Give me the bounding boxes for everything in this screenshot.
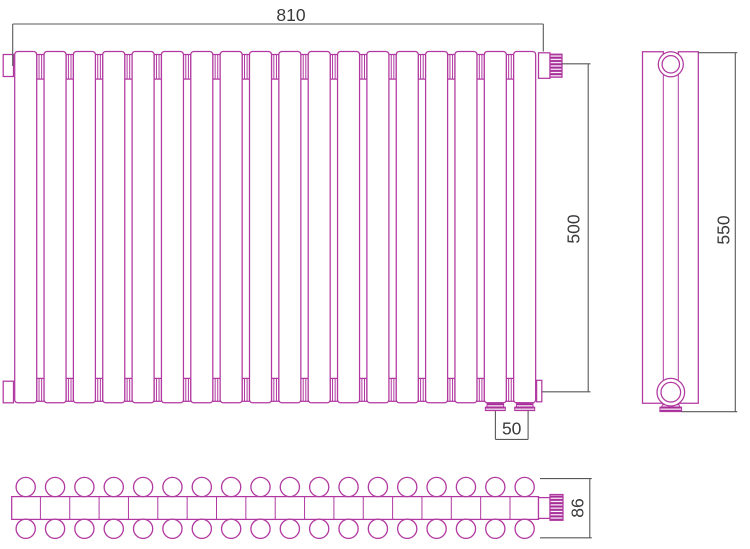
tube-cross-section-back-row [45,519,64,538]
bottom-collector-joint [213,378,220,401]
radiator-tube [250,52,272,403]
tube-cross-section-back-row [368,519,387,538]
tube-cross-section-front-row [45,477,64,496]
bottom-collector-joint [418,378,425,401]
bottom-collector-joint [389,378,396,401]
bottom-collector-joint [183,378,190,401]
tube-cross-section-back-row [104,519,123,538]
air-valve-body [539,53,551,79]
top-valve-body [539,498,551,519]
bottom-collector-joint [301,378,308,401]
tube-cross-section-front-row [486,477,505,496]
bottom-connection-nut [516,403,533,407]
radiator-tube [103,52,125,403]
dim-label-overall-height: 550 [714,215,734,244]
radiator-tube [396,52,418,403]
bottom-collector-joint [448,378,455,401]
tube-cross-section-back-row [427,519,446,538]
top-collector-joint [418,55,425,80]
tube-cross-section-back-row [75,519,94,538]
radiator-tube [161,52,183,403]
radiator-tube [308,52,330,403]
top-valve-knob [550,495,563,521]
radiator-tube [15,52,37,403]
radiator-tube [484,52,506,403]
tube-cross-section-front-row [134,477,153,496]
radiator-tube [279,52,301,403]
radiator-technical-drawing: 8105005505086 [0,0,750,549]
bottom-collector-joint [242,378,249,401]
tube-cross-section-back-row [163,519,182,538]
top-collector-joint [154,55,161,80]
top-collector-joint [213,55,220,80]
tube-cross-section-back-row [486,519,505,538]
bottom-connection-flange [515,407,535,411]
tube-cross-section-front-row [16,477,35,496]
radiator-tube [426,52,448,403]
tube-cross-section-back-row [515,519,534,538]
top-collector-joint [95,55,102,80]
top-collector-joint [183,55,190,80]
tube-cross-section-back-row [16,519,35,538]
tube-cross-section-front-row [75,477,94,496]
top-collector-joint [301,55,308,80]
tube-cross-section-front-row [222,477,241,496]
tube-cross-section-back-row [398,519,417,538]
top-collector-joint [242,55,249,80]
radiator-tube [367,52,389,403]
tube-cross-section-front-row [104,477,123,496]
radiator-tube [44,52,66,403]
tube-cross-section-front-row [280,477,299,496]
top-collector-joint [37,55,44,80]
tube-cross-section-back-row [251,519,270,538]
tube-cross-section-front-row [515,477,534,496]
tube-cross-section-back-row [192,519,211,538]
side-view [643,52,699,412]
radiator-tube [132,52,154,403]
bottom-connection-flange [485,407,505,411]
left-end-plug-top [3,55,13,77]
radiator-tube [73,52,95,403]
tube-cross-section-front-row [427,477,446,496]
radiator-tube [191,52,213,403]
tube-cross-section-front-row [251,477,270,496]
drawing-sheet: 8105005505086 [0,0,750,549]
radiator-tube [514,52,536,403]
bottom-connection-nut [487,403,504,407]
front-view [3,52,562,411]
tube-cross-section-back-row [134,519,153,538]
dim-label-width: 810 [276,5,305,25]
tube-cross-section-front-row [398,477,417,496]
air-valve-knob [550,54,562,77]
dim-label-connection-spacing: 50 [502,419,522,439]
top-collector-joint [125,55,132,80]
bottom-collector-joint [506,378,513,401]
tube-cross-section-back-row [339,519,358,538]
tube-cross-section-front-row [310,477,329,496]
top-view [12,477,563,538]
tube-cross-section-front-row [339,477,358,496]
tube-cross-section-back-row [222,519,241,538]
bottom-collector-joint [125,378,132,401]
tube-cross-section-back-row [310,519,329,538]
top-collector-joint [448,55,455,80]
bottom-collector-joint [66,378,73,401]
tube-cross-section-front-row [192,477,211,496]
bottom-collector-joint [95,378,102,401]
tube-cross-section-front-row [368,477,387,496]
tube-cross-section-back-row [280,519,299,538]
bottom-collector-joint [360,378,367,401]
tube-cross-section-back-row [456,519,475,538]
top-collector-joint [477,55,484,80]
left-end-plug-bottom [3,381,13,403]
bottom-collector-joint [477,378,484,401]
radiator-tube [338,52,360,403]
radiator-tube [455,52,477,403]
bottom-collector-joint [330,378,337,401]
bottom-collector-joint [154,378,161,401]
right-end-plug-bottom [537,380,542,402]
top-collector-joint [330,55,337,80]
dim-label-height: 500 [564,214,584,243]
radiator-tube [220,52,242,403]
bottom-collector-joint [272,378,279,401]
top-collector-joint [389,55,396,80]
tube-cross-section-front-row [456,477,475,496]
dim-label-depth: 86 [568,498,588,517]
tube-cross-section-front-row [163,477,182,496]
bottom-collector-joint [37,378,44,401]
side-profile-outline [643,52,699,404]
top-collector-joint [360,55,367,80]
top-collector-joint [272,55,279,80]
top-collector-joint [66,55,73,80]
top-collector-joint [506,55,513,80]
